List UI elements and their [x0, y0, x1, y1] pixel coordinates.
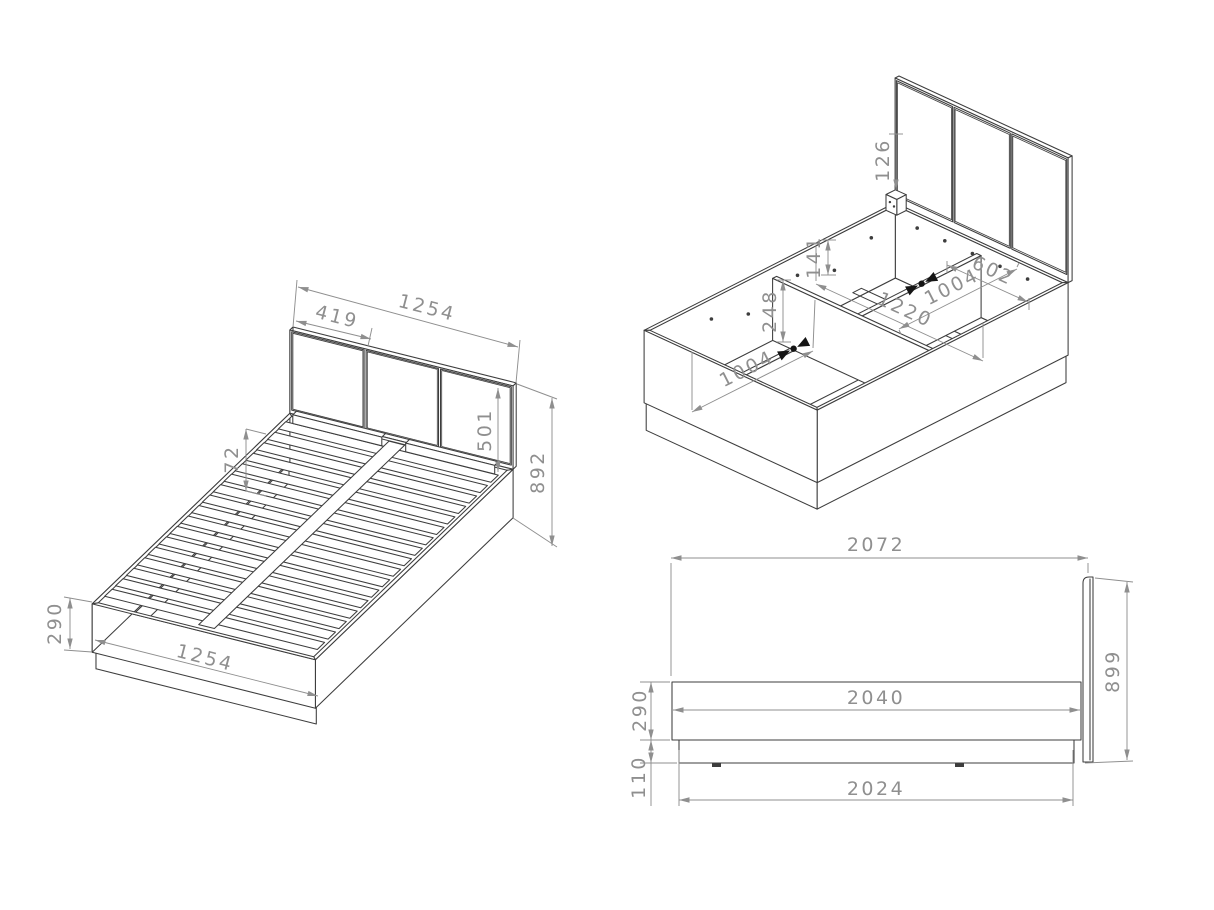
dim-arrow	[679, 797, 690, 802]
dim-arrow	[648, 740, 653, 751]
dim-arrow	[243, 429, 248, 440]
dim-label-frame-height: 290	[629, 688, 651, 732]
view-side-elevation	[640, 555, 1133, 806]
dim-label-panel-width: 419	[313, 301, 361, 333]
bed-technical-drawing: 1254 419 501 892 72 290 1254 126 602 100…	[0, 0, 1214, 910]
foot-glide	[955, 763, 964, 767]
view3-dimensions	[640, 555, 1133, 806]
screw-hole-dot	[915, 226, 919, 230]
dim-label-rail-hole-offset: 141	[803, 235, 825, 279]
screw-hole-dot	[710, 317, 714, 321]
screw-hole-dot	[747, 312, 751, 316]
dim-label-plinth-height: 110	[628, 755, 650, 799]
dim-label-total-height: 892	[527, 450, 549, 494]
headboard-right-edge	[1068, 156, 1072, 283]
screw-hole-dot	[889, 201, 891, 203]
screw-hole-dot	[833, 269, 837, 273]
dim-arrow	[671, 555, 682, 560]
screw-hole-dot	[796, 274, 800, 278]
headboard-profile	[1083, 577, 1093, 762]
dim-label-headboard-height: 899	[1102, 649, 1124, 693]
line	[246, 429, 266, 434]
line	[517, 384, 557, 399]
headboard-right-edge	[513, 383, 516, 469]
view-iso-frame-storage	[644, 76, 1072, 509]
screw-hole-dot	[870, 236, 874, 240]
line	[513, 518, 557, 547]
line	[368, 328, 372, 346]
dim-arrow	[67, 639, 72, 650]
view-iso-bed-with-slats	[64, 280, 557, 724]
line	[1095, 578, 1133, 582]
dim-label-bracket-height: 126	[872, 138, 894, 182]
dim-arrow	[1063, 797, 1074, 802]
foot-glide	[712, 763, 721, 767]
dim-label-overall-length: 2072	[847, 534, 905, 556]
technical-drawing-canvas: 1254 419 501 892 72 290 1254 126 602 100…	[0, 0, 1214, 910]
dim-label-side-height: 290	[44, 601, 66, 645]
screw-hole-dot	[893, 205, 895, 207]
dim-label-width-top: 1254	[396, 290, 458, 326]
dim-arrow	[1124, 582, 1129, 593]
screw-hole-dot	[1026, 277, 1030, 281]
dim-arrow	[1124, 750, 1129, 761]
dim-arrow	[549, 398, 554, 409]
plinth-side	[679, 740, 1074, 763]
line	[293, 280, 297, 327]
dim-arrow	[507, 342, 519, 350]
dim-arrow	[297, 284, 309, 292]
dim-arrow	[295, 318, 306, 326]
dim-label-divider-height: 248	[759, 289, 781, 333]
dim-arrow	[67, 598, 72, 609]
line	[64, 650, 92, 652]
line	[64, 597, 92, 602]
dim-label-frame-length: 2040	[847, 687, 905, 709]
dim-label-panel-height: 501	[474, 408, 496, 452]
screw-hole-dot	[943, 239, 947, 243]
dim-label-base-length: 2024	[847, 778, 905, 800]
dim-label-slat-pitch: 72	[221, 444, 243, 473]
dim-arrow	[1078, 555, 1089, 560]
